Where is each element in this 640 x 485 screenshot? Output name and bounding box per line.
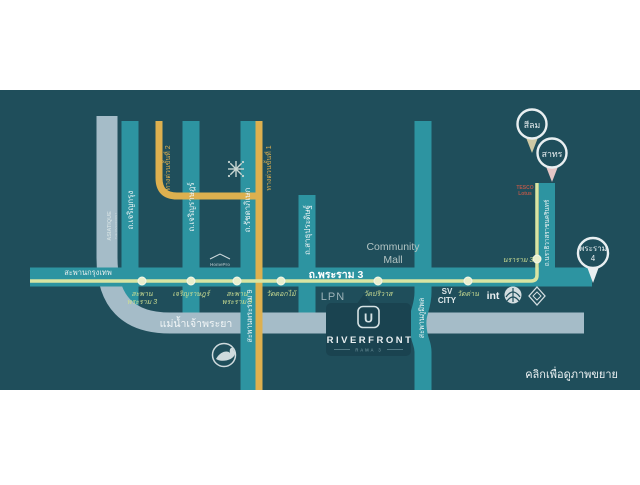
stop-label-wat-dan: วัดด่าน — [457, 290, 479, 298]
stop-dot-nararam3 — [533, 255, 541, 263]
silom-label: สีลม — [524, 120, 541, 130]
location-map[interactable]: ถ.เจริญกรุง ถ.เจริญราษฎร์ ถ.รัชดาภิเษก ถ… — [0, 0, 640, 480]
label-lotus: Lotus — [518, 191, 532, 197]
rama4-circle — [578, 238, 608, 268]
label-rama3-road: ถ.พระราม 3 — [309, 269, 364, 281]
label-sathupradit: ถ.สาธุประดิษฐ์ — [302, 205, 312, 255]
label-sv-city-2: CITY — [438, 296, 457, 305]
stop-dot-wat-dan — [464, 277, 472, 285]
stop-label-charoenrat: เจริญราษฎร์ — [173, 289, 212, 298]
asiatique-text: ASIATIQUE — [107, 211, 113, 241]
project-card: U RIVERFRONT RAMA 3 — [326, 294, 413, 356]
stop-label-wat-pariwat: วัดปริวาส — [364, 290, 395, 298]
project-logo-letter: U — [364, 312, 373, 326]
label-community-2: Mall — [383, 254, 402, 266]
project-sub-label: RAMA 3 — [355, 348, 382, 353]
label-narathiwat: ถ.นราธิวาสราชนครินทร์ — [543, 199, 551, 266]
rama4-label-1: พระราม — [579, 244, 607, 253]
label-krungthep-bridge: สะพานกรุงเทพ — [64, 268, 112, 277]
stop-dot-wat-dokmai — [277, 277, 285, 285]
stop-label-wat-dokmai: วัดดอกไม้ — [266, 289, 298, 298]
homepro-text: HomePro — [210, 262, 230, 267]
stop-label-rama3-bridge-1: สะพาน — [131, 291, 153, 298]
label-river: แม่น้ำเจ้าพระยา — [160, 316, 233, 330]
page: ถ.เจริญกรุง ถ.เจริญราษฎร์ ถ.รัชดาภิเษก ถ… — [0, 0, 640, 480]
stop-dot-charoenrat — [187, 277, 195, 285]
label-community-1: Community — [366, 241, 420, 253]
stop-label-rama9-bridge-1: สะพาน — [226, 291, 248, 298]
rama4-label-2: 4 — [591, 254, 596, 263]
stop-label-nararam3: นราราม 3 — [503, 257, 534, 264]
asiatique-logo: ASIATIQUE THE RIVERFRONT — [107, 211, 118, 241]
round-landmark-icon — [505, 287, 522, 304]
sathorn-label: สาทร — [542, 149, 563, 159]
stop-label-rama3-bridge-2: พระราม 3 — [127, 299, 157, 306]
int-logo: int — [487, 290, 500, 302]
label-charoenrat: ถ.เจริญราษฎร์ — [186, 182, 196, 232]
stop-dot-rama3-bridge — [138, 277, 146, 285]
asiatique-subtext: THE RIVERFRONT — [114, 213, 118, 240]
stop-dot-wat-pariwat — [374, 277, 382, 285]
label-ratchadaphisek: ถ.รัชดาภิเษก — [243, 188, 252, 233]
road-bhumibol-bridge — [418, 121, 423, 390]
zoom-hint-link[interactable]: คลิกเพื่อดูภาพขยาย — [525, 366, 618, 381]
ornament-landmark-icon — [228, 161, 244, 177]
label-charoenkrung: ถ.เจริญกรุง — [126, 191, 135, 230]
label-sv-city-1: SV — [442, 287, 453, 296]
label-bhumibol-bridge: สะพานภูมิพล — [417, 298, 426, 339]
stop-label-rama9-bridge-2: พระราม 9 — [222, 299, 252, 306]
stop-dot-rama9-bridge — [233, 277, 241, 285]
project-name: RIVERFRONT — [327, 335, 414, 346]
label-lpn: LPN — [321, 291, 345, 303]
